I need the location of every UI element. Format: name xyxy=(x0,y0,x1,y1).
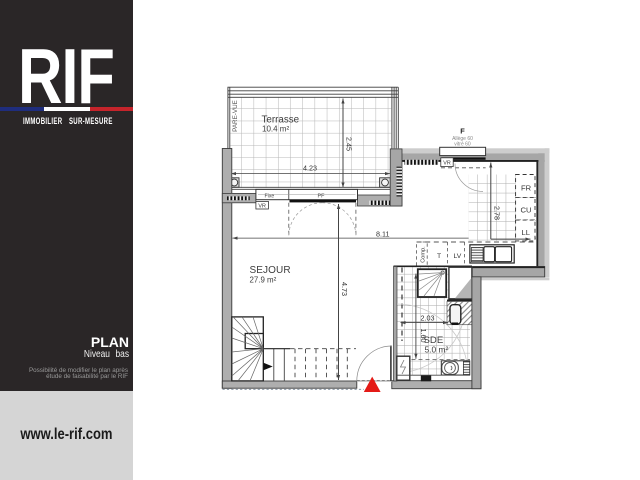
svg-text:VR: VR xyxy=(258,203,266,209)
svg-text:Fixe: Fixe xyxy=(265,194,275,200)
svg-text:4.73: 4.73 xyxy=(340,282,349,296)
svg-text:FR: FR xyxy=(521,184,532,193)
svg-text:vitré 60: vitré 60 xyxy=(454,141,471,147)
svg-text:2.03: 2.03 xyxy=(421,314,435,323)
svg-text:2.78: 2.78 xyxy=(492,206,501,220)
svg-text:CU: CU xyxy=(521,206,532,215)
svg-text:LL: LL xyxy=(522,228,530,237)
svg-text:4.23: 4.23 xyxy=(303,164,317,173)
svg-text:VR: VR xyxy=(443,161,451,167)
svg-text:5.0 m²: 5.0 m² xyxy=(425,345,449,355)
svg-text:PF: PF xyxy=(318,194,326,200)
svg-text:SEJOUR: SEJOUR xyxy=(250,265,291,276)
svg-text:10.4 m²: 10.4 m² xyxy=(262,125,289,134)
svg-text:8.11: 8.11 xyxy=(376,229,389,238)
svg-text:T: T xyxy=(437,253,441,260)
svg-text:LV: LV xyxy=(454,253,462,260)
svg-text:F: F xyxy=(460,127,465,136)
svg-text:2.45: 2.45 xyxy=(345,137,354,151)
svg-text:Comp.: Comp. xyxy=(421,246,427,263)
svg-text:PARE-VUE: PARE-VUE xyxy=(232,100,239,132)
svg-text:27.9 m²: 27.9 m² xyxy=(250,275,277,284)
